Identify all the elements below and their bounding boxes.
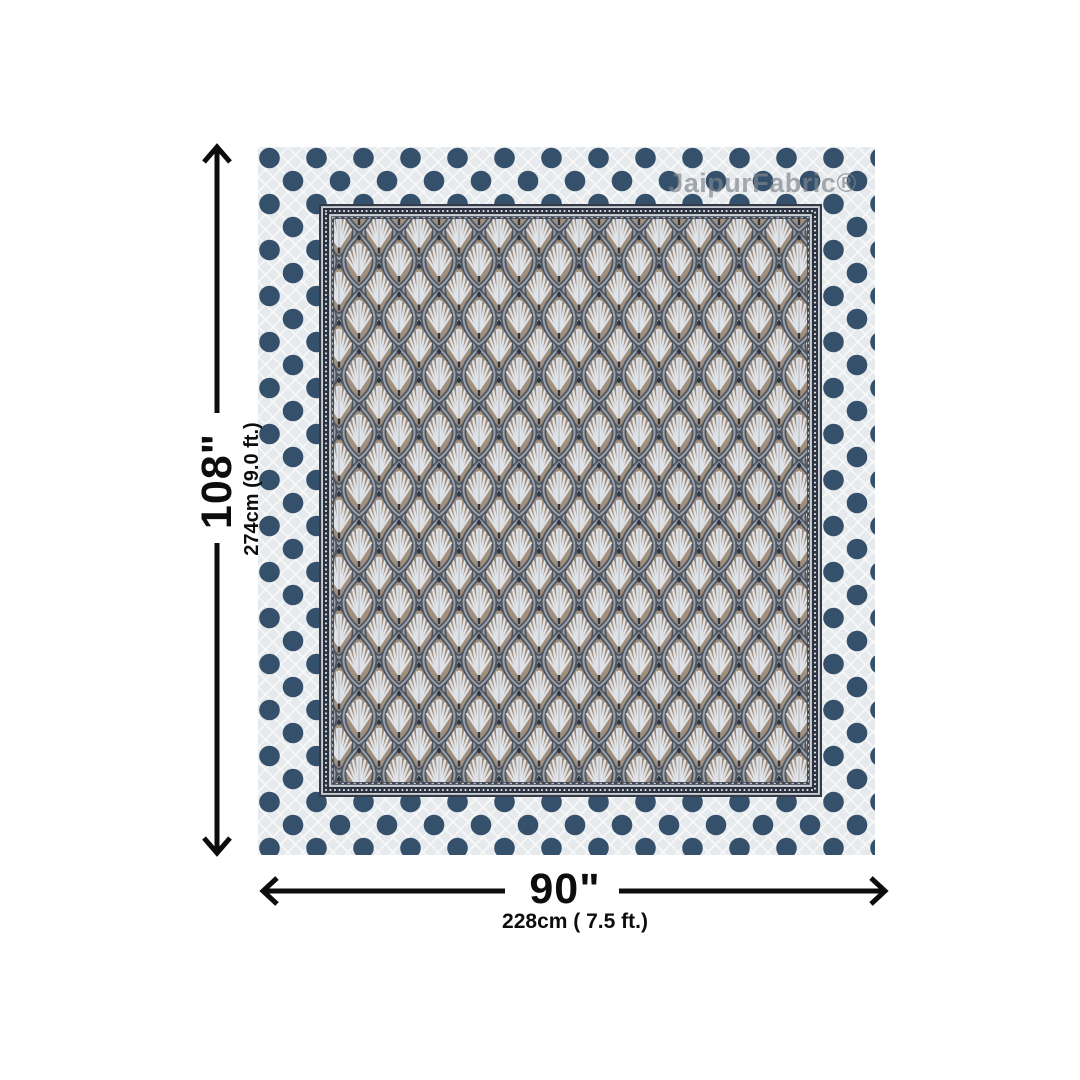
width-inches-label: 90" (455, 867, 675, 911)
brand-watermark: JaipurFabric® (655, 168, 870, 200)
height-metric-label: 274cm (9.0 ft.) (241, 379, 263, 599)
center-panel (319, 204, 822, 797)
width-metric-label: 228cm ( 7.5 ft.) (445, 910, 705, 934)
height-inches-label: 108" (195, 371, 239, 591)
bedsheet-image (258, 147, 875, 855)
bedsheet-dimension-diagram: JaipurFabric® 108" 274cm (9.0 ft.) 90" 2… (0, 0, 1080, 1080)
